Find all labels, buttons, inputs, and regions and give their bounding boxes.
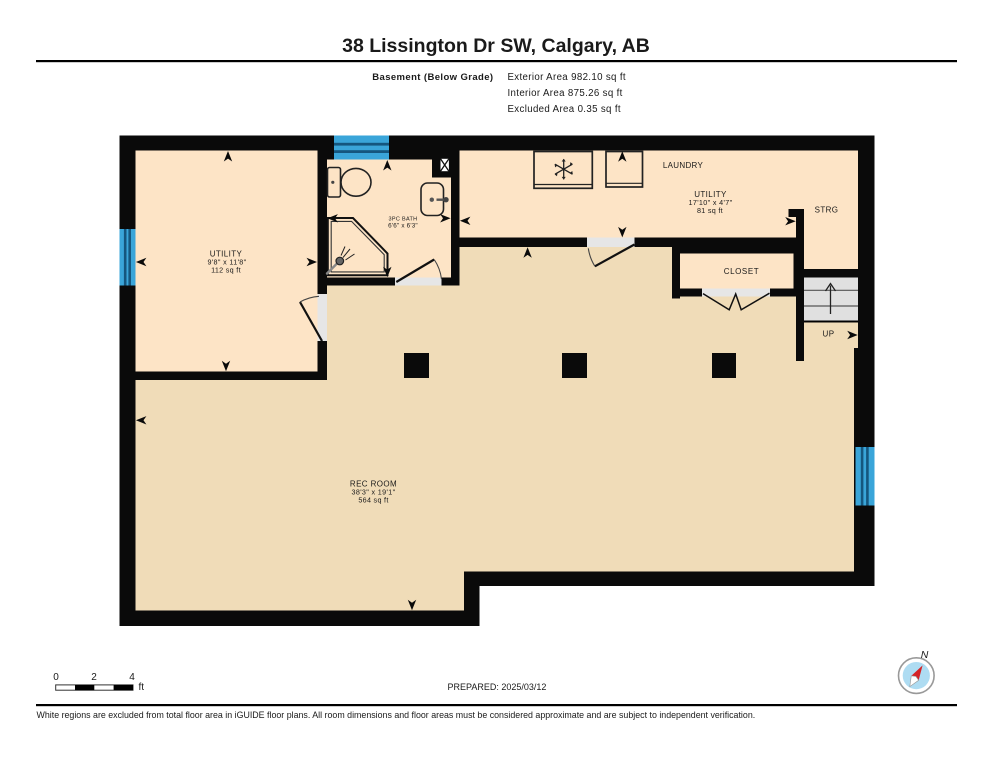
svg-text:0: 0 xyxy=(53,672,59,683)
svg-text:6'6" x 6'3": 6'6" x 6'3" xyxy=(388,223,418,230)
svg-text:CLOSET: CLOSET xyxy=(724,267,760,276)
svg-text:PREPARED: 2025/03/12: PREPARED: 2025/03/12 xyxy=(448,682,547,692)
svg-text:2: 2 xyxy=(91,672,97,683)
svg-text:Exterior Area 982.10 sq ft: Exterior Area 982.10 sq ft xyxy=(508,72,626,83)
svg-text:4: 4 xyxy=(129,672,135,683)
svg-text:Basement (Below Grade): Basement (Below Grade) xyxy=(372,72,493,83)
svg-text:564 sq ft: 564 sq ft xyxy=(358,495,388,504)
svg-text:UP: UP xyxy=(823,329,835,338)
svg-text:ft: ft xyxy=(139,682,145,693)
svg-text:Interior Area 875.26 sq ft: Interior Area 875.26 sq ft xyxy=(508,88,623,99)
svg-text:STRG: STRG xyxy=(815,205,839,214)
svg-text:112 sq ft: 112 sq ft xyxy=(211,266,241,275)
svg-text:Excluded Area 0.35 sq ft: Excluded Area 0.35 sq ft xyxy=(508,104,621,115)
svg-text:White regions are excluded fro: White regions are excluded from total fl… xyxy=(37,710,756,720)
svg-text:81 sq ft: 81 sq ft xyxy=(697,206,723,215)
svg-text:N: N xyxy=(921,649,929,661)
svg-text:38 Lissington Dr SW, Calgary,: 38 Lissington Dr SW, Calgary, AB xyxy=(342,35,650,57)
svg-text:LAUNDRY: LAUNDRY xyxy=(663,161,704,170)
